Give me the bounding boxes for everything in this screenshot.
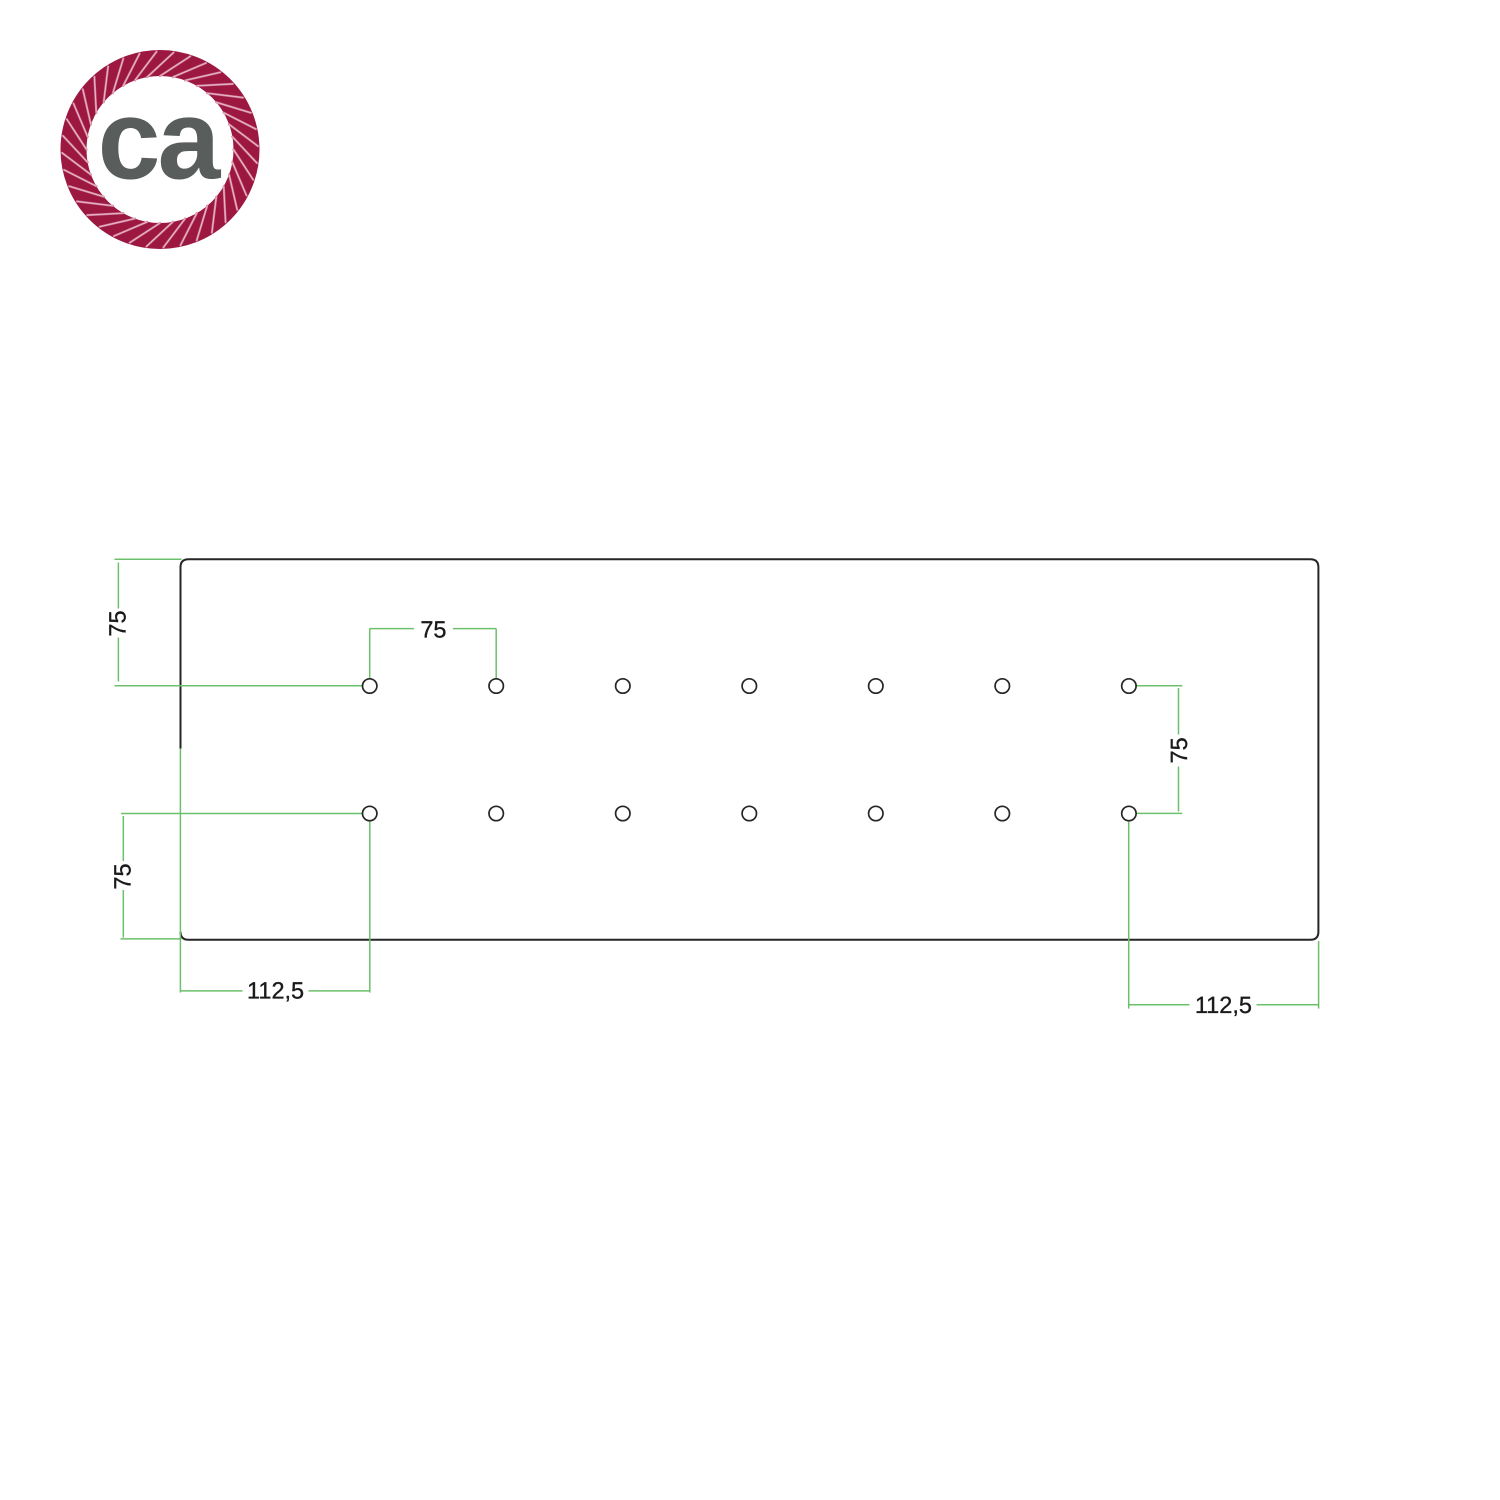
svg-text:ca: ca [98,77,222,203]
svg-text:75: 75 [104,610,130,636]
svg-text:112,5: 112,5 [1195,992,1252,1018]
svg-text:112,5: 112,5 [247,977,304,1003]
svg-text:75: 75 [420,617,446,643]
svg-text:75: 75 [1166,737,1192,763]
svg-text:75: 75 [109,863,135,889]
